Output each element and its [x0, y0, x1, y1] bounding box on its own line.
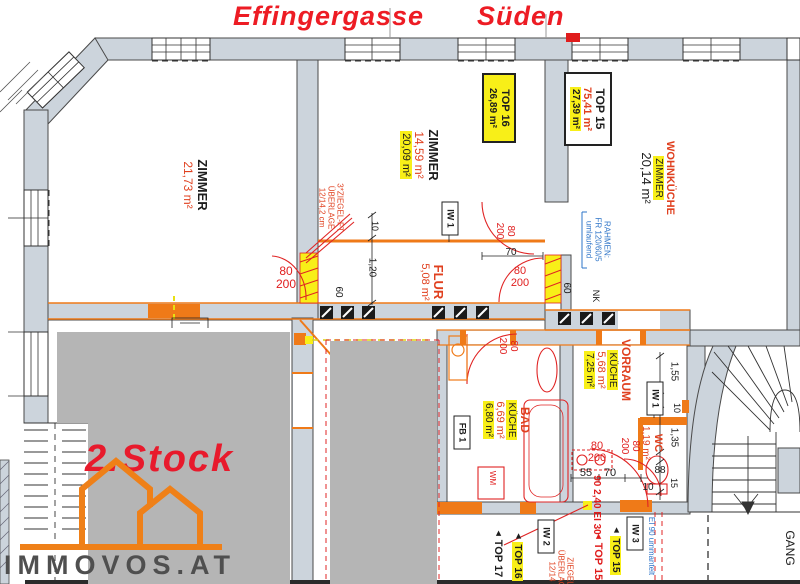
note-line: ÜBERLAGE	[556, 550, 565, 584]
dim-text: 10	[671, 403, 681, 413]
dim-text: 1,55	[669, 362, 680, 381]
door-size-flur-west: 80 200	[271, 264, 301, 292]
room-label-zimmer-mid: ZIMMER 14,59 m² 20,09 m²	[398, 115, 442, 195]
note-line: RAHMEN:	[601, 221, 610, 258]
room-name-new: KÜCHE	[607, 350, 618, 389]
door-width: 80	[514, 265, 526, 277]
door-size-wc: 80 200	[618, 431, 642, 461]
entrance-marker-top17: ◄ TOP 17	[491, 521, 505, 584]
door-width: 80	[591, 440, 603, 452]
tag-text: IW 2	[541, 527, 551, 546]
door-height: 200	[276, 278, 296, 291]
unit-label: TOP 16	[498, 89, 510, 127]
tag-text: IW 1	[650, 389, 660, 408]
tag-text: FB 1	[457, 423, 467, 443]
door-size-flur-east: 80 200	[505, 263, 535, 291]
wall-tag-iw1-b: IW 1	[647, 382, 664, 416]
immovos-house-logo-icon	[12, 455, 232, 555]
dim-text: 1,35	[669, 428, 680, 447]
room-name-new: KÜCHE	[506, 400, 517, 439]
door-size-bad: 80 200	[496, 331, 520, 361]
unit-box-top15: TOP 15 75,41 m² 27,39 m²	[564, 72, 612, 146]
room-area-new: 6,80 m²	[483, 401, 494, 439]
room-area: 5,08 m²	[419, 263, 431, 300]
room-label-gang: GANG	[782, 526, 796, 570]
dim-text: 10	[369, 221, 379, 231]
note-line: 3*ZIEGEL-FT	[334, 183, 343, 231]
dim-text: 15	[668, 478, 678, 488]
door-width: 80	[505, 225, 516, 236]
entrance-marker-top16: ◄ TOP 16	[511, 524, 525, 584]
room-name: VORRAUM	[618, 339, 631, 401]
room-area: 21,73 m²	[181, 161, 194, 208]
room-label-bad: BAD KÜCHE 6,69 m² 6,80 m²	[479, 392, 535, 448]
dim-70-door: 70	[501, 246, 521, 258]
dim-155: 1,55	[668, 357, 681, 387]
dim-10-bottom: 10	[638, 481, 658, 493]
door-height: 200	[494, 223, 505, 240]
door-size-vorraum: 80 200	[582, 438, 612, 466]
wall-tag-iw1-a: IW 1	[442, 202, 459, 236]
door-height: 200	[511, 277, 529, 289]
title-street: Effingergasse	[233, 1, 424, 32]
dim-15: 15	[667, 473, 679, 493]
note-lintel: 3*ZIEGEL-FT ÜBERLAGE 12/14,2 cm	[317, 178, 344, 238]
dim-10-right: 10	[670, 398, 682, 418]
floorplan-page: Effingergasse Süden 2.Stock IMMOVOS.AT Z…	[0, 0, 800, 584]
wall-tag-iw2: IW 2	[538, 520, 555, 554]
dim-text: 88	[654, 465, 665, 476]
room-name: ZIMMER	[426, 129, 440, 180]
nk-label: NK	[589, 286, 601, 306]
room-area-old: 14,59 m²	[412, 131, 425, 178]
entrance-arrow-icon: ◄	[593, 532, 603, 541]
note-fire-jacket: EI 90 ummantelt	[646, 510, 656, 582]
room-name: BAD	[517, 407, 530, 433]
note-line: 12/14,2 cm	[317, 188, 326, 228]
dim-55: 55	[576, 467, 596, 479]
note-lintel2: ZIEGEL ÜBERLAGE 12/14	[547, 549, 574, 584]
note-line: umlaufend	[584, 221, 593, 258]
room-label-wohnkueche: WOHNKÜCHE ZIMMER 20,14 m²	[634, 132, 680, 224]
note-line: 12/14	[547, 561, 556, 581]
room-name: FLUR	[431, 265, 445, 300]
privacy-mask-left-upper	[57, 332, 290, 423]
entrance-marker-top15-new: ◄ TOP 15	[609, 520, 623, 580]
dim-60-nk: 60	[561, 278, 573, 298]
dim-text: 60	[334, 286, 345, 297]
note-frame: RAHMEN: FR 120/60/5 umlaufend	[584, 211, 611, 269]
room-label-vorraum: VORRAUM KÜCHE 5,68 m² 7,25 m²	[579, 337, 637, 403]
door-height: 200	[497, 338, 508, 355]
door-height: 200	[619, 438, 630, 455]
unit-label: TOP 15	[593, 89, 606, 130]
unit-area: 26,89 m²	[487, 88, 498, 128]
dim-text: 55	[580, 467, 592, 479]
room-area: 20,14 m²	[638, 152, 652, 203]
dim-10-top: 10	[368, 216, 380, 236]
unit-box-top16: TOP 16 26,89 m²	[482, 73, 516, 143]
tag-text: IW 1	[445, 209, 455, 228]
room-area-new: 7,25 m²	[584, 351, 595, 389]
dim-60-flur: 60	[333, 282, 345, 302]
door-height: 200	[588, 452, 606, 464]
room-label-zimmer-left: ZIMMER 21,73 m²	[180, 140, 210, 230]
note-line: FR 120/60/5	[593, 217, 602, 261]
unit-area-new: 27,39 m²	[570, 87, 581, 131]
entrance-marker-top15-old: ◄ TOP 15	[591, 524, 605, 584]
entrance-arrow-icon: ◄	[513, 531, 523, 540]
dim-120: 1,20	[366, 253, 379, 283]
wall-tag-fb1: FB 1	[454, 416, 471, 450]
room-area: 1,19 m²	[640, 426, 651, 460]
note-line: ÜBERLAGE	[326, 186, 335, 230]
room-label-flur: FLUR 5,08 m²	[417, 254, 447, 310]
entrance-arrow-icon: ◄	[493, 529, 503, 538]
dim-text: 60	[562, 282, 573, 293]
tag-text: NK	[590, 290, 600, 303]
room-name: WC	[651, 434, 663, 452]
dim-text: 70	[604, 467, 616, 479]
room-label-wc: WC 1,19 m²	[638, 420, 666, 466]
room-name-new: ZIMMER	[653, 156, 664, 199]
tag-text: WM	[488, 471, 497, 485]
tag-text: IW 3	[630, 524, 640, 543]
door-size-top15-upper: 80 200	[493, 216, 517, 246]
entrance-label: TOP 15	[611, 536, 622, 574]
room-name: GANG	[782, 530, 795, 565]
dim-70-bottom: 70	[600, 467, 620, 479]
unit-area-old: 75,41 m²	[581, 87, 593, 131]
brand-wordmark: IMMOVOS.AT	[4, 550, 236, 581]
room-name: ZIMMER	[194, 159, 208, 210]
entrance-label: TOP 15	[592, 543, 604, 581]
room-name: WOHNKÜCHE	[664, 141, 676, 215]
entrance-arrow-icon: ◄	[611, 525, 621, 534]
title-direction: Süden	[477, 1, 565, 32]
dim-135: 1,35	[668, 423, 681, 453]
door-width: 80	[508, 340, 519, 351]
dim-text: 10	[642, 482, 653, 493]
dim-text: 70	[505, 247, 516, 258]
note-line: EI 90 ummantelt	[647, 517, 656, 575]
room-area-old: 5,68 m²	[595, 351, 607, 388]
dim-text: 1,20	[367, 258, 378, 277]
washing-machine-label: WM	[486, 467, 498, 489]
entrance-label: TOP 17	[492, 540, 504, 578]
room-area-old: 6,69 m²	[494, 401, 506, 438]
door-width: 80	[630, 440, 641, 451]
room-area-new: 20,09 m²	[400, 131, 412, 178]
privacy-mask-center	[330, 341, 437, 584]
note-line: ZIEGEL	[564, 557, 573, 584]
entrance-label: TOP 16	[513, 542, 524, 580]
wall-tag-iw3: IW 3	[627, 517, 644, 551]
